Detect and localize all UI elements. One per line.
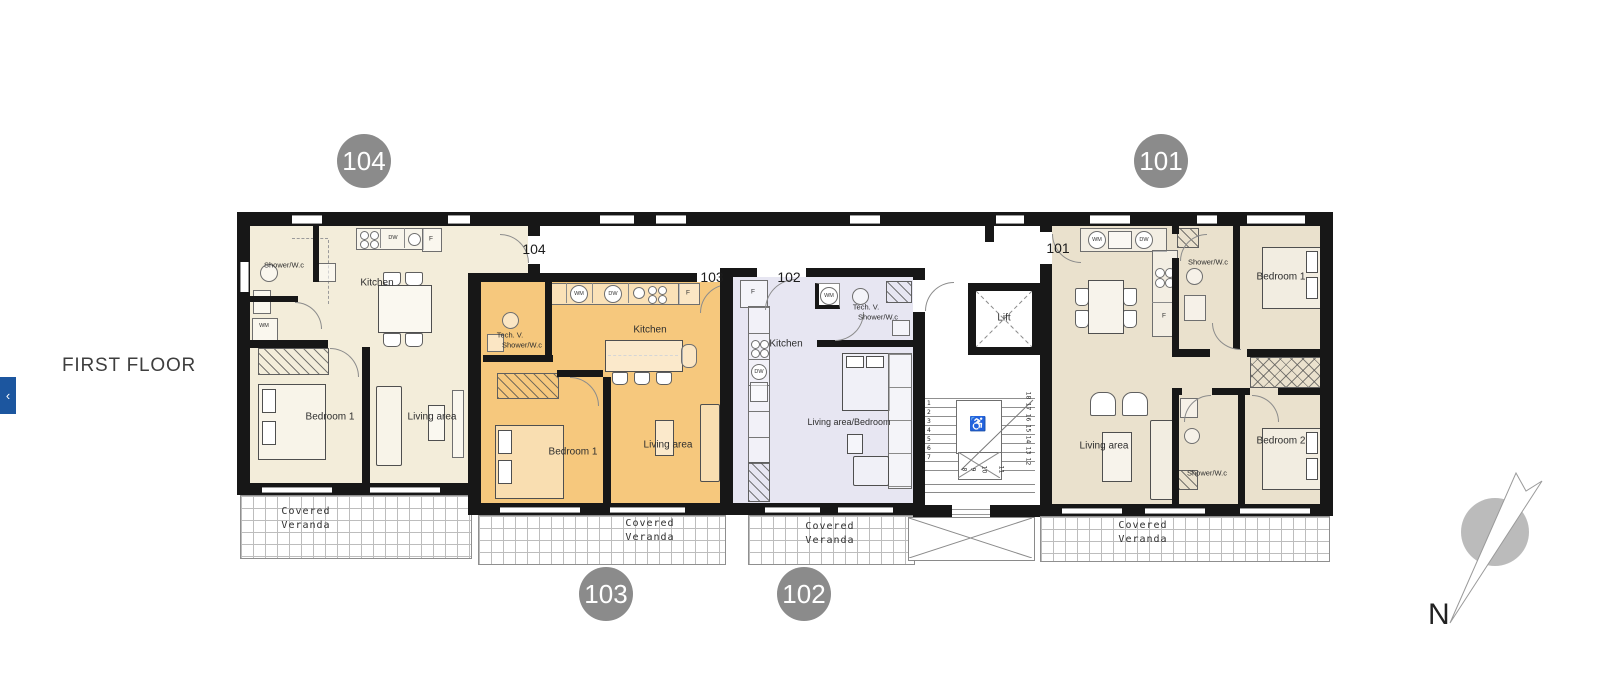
- kitchen-sink: [408, 233, 421, 246]
- wardrobe: [258, 348, 329, 375]
- stair-number: 4: [927, 427, 931, 434]
- chair: [1123, 288, 1137, 306]
- pillow: [846, 356, 864, 368]
- wall: [557, 370, 603, 377]
- room-label-living: Living area: [1080, 441, 1129, 452]
- room-label-bedroom2: Bedroom 2: [1257, 436, 1306, 447]
- dining-table: [378, 285, 432, 333]
- coffee-table: [655, 420, 674, 456]
- burner: [1155, 268, 1165, 278]
- chair: [383, 333, 401, 347]
- wall: [1278, 388, 1333, 395]
- room-label-bedroom1: Bedroom 1: [306, 412, 355, 423]
- sink: [892, 320, 910, 336]
- wall: [1172, 258, 1179, 349]
- wall-left: [237, 212, 250, 492]
- wall: [1172, 226, 1179, 234]
- stair-number: 13: [1024, 447, 1031, 455]
- window: [1090, 215, 1130, 224]
- stair-number: 2: [927, 409, 931, 416]
- wheelchair-icon: ♿: [969, 416, 986, 433]
- corner-label-103: 103: [700, 269, 723, 285]
- veranda-label: Covered: [281, 506, 330, 517]
- veranda-label: Veranda: [805, 535, 854, 546]
- room-label-living: Living area: [644, 440, 693, 451]
- kitchen-cart: [318, 263, 336, 282]
- wall: [1172, 388, 1182, 395]
- sofa: [700, 404, 720, 482]
- pillow: [262, 421, 276, 445]
- window: [292, 215, 322, 224]
- room-label-tech: Tech. V.: [497, 331, 523, 340]
- wardrobe: [1250, 357, 1322, 388]
- sliding-door: [838, 507, 893, 513]
- stool: [656, 372, 672, 385]
- landing-line: [925, 484, 1035, 485]
- stool: [612, 372, 628, 385]
- room-label-shower: Shower/W.c: [502, 341, 542, 350]
- counter-divider: [566, 283, 567, 303]
- wall-bottom-core: [990, 505, 1040, 517]
- kitchen-island: [605, 340, 683, 372]
- veranda-label: Veranda: [281, 520, 330, 531]
- pillow: [1306, 277, 1318, 299]
- pillow: [498, 430, 512, 454]
- wall-top-102: [733, 268, 757, 277]
- wall-top: [237, 212, 1333, 226]
- wall: [1172, 395, 1179, 504]
- fridge-label: F: [686, 290, 690, 297]
- landing-line: [925, 492, 1035, 493]
- veranda-104: [240, 495, 472, 559]
- room-label-tech: Tech. V.: [853, 303, 879, 312]
- door-label-104: 104: [522, 241, 545, 257]
- burner: [648, 295, 657, 304]
- wardrobe: [497, 373, 559, 399]
- room-label-bedroom1: Bedroom 1: [1257, 272, 1306, 283]
- kitchen-sink: [1108, 231, 1132, 249]
- veranda-label: Veranda: [1118, 534, 1167, 545]
- room-label-living: Living area: [408, 412, 457, 423]
- window: [1247, 215, 1305, 224]
- tv-unit: [452, 390, 464, 458]
- window: [656, 215, 686, 224]
- sliding-door: [610, 507, 685, 513]
- room-label-shower-bottom: Shower/W.c: [1187, 469, 1227, 478]
- wall-right: [1320, 212, 1333, 516]
- pillow: [1306, 458, 1318, 480]
- wall: [1172, 349, 1210, 357]
- wall-101-left: [1040, 212, 1052, 232]
- sink: [253, 290, 271, 314]
- wall: [483, 355, 553, 362]
- stair-number: 5: [927, 436, 931, 443]
- wall: [1238, 395, 1245, 504]
- stair-number: 18: [1024, 392, 1031, 400]
- window: [600, 215, 634, 224]
- stair-number: 16: [1024, 414, 1031, 422]
- toilet: [1186, 268, 1203, 285]
- core-exit-door: [952, 509, 990, 515]
- burner: [751, 349, 760, 358]
- veranda-103: [478, 515, 726, 565]
- sliding-door: [1240, 508, 1310, 514]
- armchair: [1122, 392, 1148, 416]
- counter-divider: [628, 283, 629, 303]
- burner: [1155, 278, 1165, 288]
- washing-machine: WM: [820, 287, 838, 305]
- fridge-label: F: [751, 289, 755, 296]
- pillow: [262, 389, 276, 413]
- veranda-label: Covered: [805, 521, 854, 532]
- stair-cross: [958, 452, 1000, 478]
- wall: [362, 347, 370, 484]
- counter-divider: [380, 228, 381, 248]
- burner: [760, 349, 769, 358]
- stair-number: 11: [997, 466, 1004, 474]
- chair: [1123, 310, 1137, 328]
- sliding-door: [1145, 508, 1205, 514]
- toilet: [1184, 428, 1200, 444]
- kitchen-sink: [750, 382, 768, 402]
- stair-landing-cross: [909, 518, 1032, 558]
- room-label-kitchen: Kitchen: [769, 339, 802, 350]
- wall-top-102: [806, 268, 913, 277]
- counter-divider: [404, 228, 405, 248]
- chair: [405, 333, 423, 347]
- wall-core-left: [913, 268, 925, 280]
- sliding-door: [262, 487, 332, 493]
- floor-plan-page: ‹ FIRST FLOOR 104 101 103 102 Covered Ve…: [0, 0, 1600, 696]
- burner: [370, 240, 379, 249]
- apartment-badge-101[interactable]: 101: [1134, 134, 1188, 188]
- room-label-living-bedroom: Living area/Bedroom: [807, 417, 890, 427]
- window: [240, 262, 249, 292]
- pillow: [1306, 432, 1318, 454]
- sliding-door: [1062, 508, 1122, 514]
- pillow: [1306, 251, 1318, 273]
- side-table: [847, 434, 863, 454]
- room-label-shower: Shower/W.c: [858, 313, 898, 322]
- dishwasher-label: DW: [388, 235, 397, 241]
- wall-top-103: [470, 273, 697, 282]
- stair-number: 3: [927, 418, 931, 425]
- stair-number: 9: [969, 468, 976, 472]
- burner: [360, 240, 369, 249]
- kitchen-sink: [633, 287, 645, 299]
- sliding-door: [765, 507, 820, 513]
- room-label-shower-top: Shower/W.c: [1188, 258, 1228, 267]
- room-label-bedroom1: Bedroom 1: [549, 447, 598, 458]
- window: [996, 215, 1024, 224]
- room-label-shower: Shower/W.c: [264, 261, 304, 270]
- veranda-label: Covered: [1118, 520, 1167, 531]
- door-arc-core: [925, 282, 954, 311]
- wall: [250, 296, 298, 302]
- chair: [1075, 288, 1089, 306]
- apartment-badge-103[interactable]: 103: [579, 567, 633, 621]
- wall-103-102: [720, 268, 733, 515]
- wall: [545, 281, 552, 355]
- door-label-101: 101: [1046, 240, 1069, 256]
- fridge-label: F: [1162, 313, 1166, 320]
- dining-table: [1088, 280, 1124, 334]
- apartment-badge-104[interactable]: 104: [337, 134, 391, 188]
- wall: [603, 377, 611, 503]
- stair-number: 12: [1024, 458, 1031, 466]
- counter-divider: [592, 283, 593, 303]
- veranda-label: Covered: [625, 518, 674, 529]
- burner: [760, 340, 769, 349]
- dishwasher: DW: [751, 364, 767, 380]
- fridge-label: F: [429, 236, 433, 243]
- window: [1197, 215, 1217, 224]
- pillow: [866, 356, 884, 368]
- sofa: [853, 456, 889, 486]
- stair-number: 6: [927, 445, 931, 452]
- toilet: [502, 312, 519, 329]
- veranda-101: [1040, 516, 1330, 562]
- stool: [634, 372, 650, 385]
- dishwasher: DW: [604, 285, 622, 303]
- washing-machine: WM: [570, 285, 588, 303]
- wall-core-left: [913, 312, 925, 517]
- room-label-kitchen: Kitchen: [360, 278, 393, 289]
- dishwasher: DW: [1135, 231, 1153, 249]
- chair: [405, 272, 423, 286]
- wall-stub: [985, 226, 994, 242]
- wall: [250, 340, 328, 348]
- stair-number: 15: [1024, 425, 1031, 433]
- window: [850, 215, 880, 224]
- sliding-door: [500, 507, 580, 513]
- washing-machine-label: WM: [259, 323, 269, 329]
- wardrobe: [888, 353, 912, 489]
- stair-number: 7: [927, 454, 931, 461]
- kitchen-dashed-line: [292, 238, 328, 239]
- stair-number: 1: [927, 400, 931, 407]
- stair-number: 10: [980, 466, 987, 474]
- stair-number: 8: [960, 468, 967, 472]
- island-end: [681, 344, 697, 368]
- stair-number: 14: [1024, 436, 1031, 444]
- stair-number: 17: [1024, 403, 1031, 411]
- burner: [658, 286, 667, 295]
- burner: [751, 340, 760, 349]
- wall: [817, 340, 913, 347]
- lift-label: Lift: [997, 313, 1010, 324]
- back-button[interactable]: ‹: [0, 377, 16, 414]
- coffee-table: [428, 405, 445, 441]
- coffee-table: [1102, 432, 1132, 482]
- burner: [658, 295, 667, 304]
- sofa: [376, 386, 402, 466]
- window: [448, 215, 470, 224]
- wall-104-103: [468, 273, 481, 515]
- room-label-kitchen: Kitchen: [633, 325, 666, 336]
- floor-title: FIRST FLOOR: [62, 355, 196, 377]
- wall: [1247, 349, 1333, 357]
- chair: [1075, 310, 1089, 328]
- wall: [528, 226, 540, 236]
- burner: [360, 231, 369, 240]
- sink: [1184, 295, 1206, 321]
- veranda-label: Veranda: [625, 532, 674, 543]
- burner: [370, 231, 379, 240]
- corner-label-102: 102: [777, 269, 800, 285]
- armchair: [1090, 392, 1116, 416]
- burner: [648, 286, 657, 295]
- washing-machine: WM: [1088, 231, 1106, 249]
- wall: [313, 226, 319, 282]
- apartment-badge-102[interactable]: 102: [777, 567, 831, 621]
- north-label: N: [1428, 598, 1450, 632]
- sliding-door: [370, 487, 440, 493]
- sofa: [1150, 420, 1174, 500]
- shower-tray: [886, 281, 912, 303]
- wall: [1212, 388, 1250, 395]
- chevron-left-icon: ‹: [6, 388, 10, 403]
- wall-101-left: [1040, 264, 1052, 504]
- cabinet: [748, 462, 770, 502]
- pillow: [498, 460, 512, 484]
